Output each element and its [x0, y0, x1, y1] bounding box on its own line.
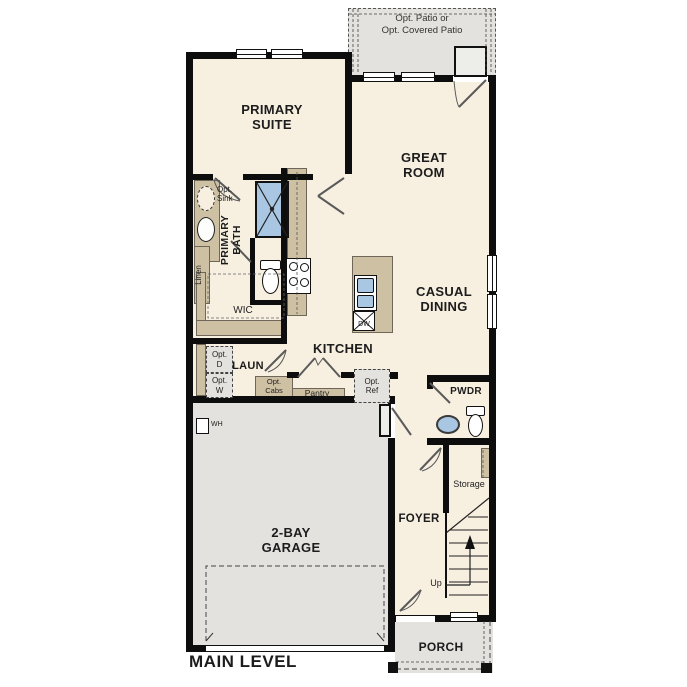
- linen-label: Linen: [194, 246, 210, 304]
- bath-toilet-bowl: [262, 268, 279, 294]
- island-sink-bowl: [357, 278, 374, 293]
- wic-shelf-bottom: [196, 320, 286, 336]
- room-label-casual-dining: CASUAL DINING: [404, 285, 484, 315]
- garage-area: [193, 403, 390, 645]
- garage-door: [206, 645, 384, 652]
- garage-door-leaf: [379, 404, 391, 437]
- room-label-wic: WIC: [218, 305, 268, 317]
- floor-plan: Opt. Patio or Opt. Covered Patio PRIMARY…: [0, 0, 687, 687]
- window: [401, 72, 435, 82]
- room-label-laundry: LAUN: [218, 360, 278, 373]
- wall: [193, 174, 213, 180]
- vanity-sink-icon: [197, 217, 215, 242]
- opt-washer-box: Opt. W: [206, 373, 233, 398]
- wall: [281, 168, 287, 340]
- room-label-porch: PORCH: [401, 641, 481, 655]
- opt-ref-label: Opt. Ref: [361, 377, 383, 395]
- wall: [345, 52, 352, 174]
- pantry-label: Pantry: [292, 389, 342, 399]
- room-label-powder: PWDR: [436, 386, 496, 398]
- wall: [489, 75, 496, 622]
- room-label-foyer: FOYER: [384, 513, 454, 526]
- wall: [186, 52, 193, 652]
- powder-sink-icon: [436, 415, 460, 434]
- dishwasher-label: DW: [352, 321, 376, 329]
- opt-ref-box: Opt. Ref: [354, 369, 390, 403]
- patio-door-leaf: [454, 46, 487, 77]
- laundry-shelf: [196, 344, 206, 396]
- wall: [427, 375, 433, 389]
- water-heater-label: WH: [211, 421, 231, 429]
- room-label-primary-bath: PRIMARY BATH: [216, 205, 246, 275]
- window: [236, 49, 267, 59]
- wall: [243, 174, 313, 180]
- opt-sink-label: Opt. Sink: [217, 185, 241, 203]
- water-heater-icon: [196, 418, 209, 434]
- stairs-up-label: Up: [427, 578, 445, 588]
- opt-cabs-text: Opt. Cabs: [263, 378, 285, 395]
- patio-label-line1: Opt. Patio or: [348, 14, 496, 25]
- wall: [193, 338, 287, 344]
- room-label-kitchen: KITCHEN: [293, 342, 393, 357]
- opt-cabs-label: Opt. Cabs: [255, 378, 293, 395]
- window: [271, 49, 303, 59]
- room-label-garage: 2-BAY GARAGE: [246, 526, 336, 556]
- wall: [427, 375, 496, 382]
- window: [487, 294, 497, 329]
- burner: [300, 278, 309, 287]
- powder-toilet-bowl: [468, 414, 483, 437]
- burner: [289, 262, 298, 271]
- burner: [300, 263, 309, 272]
- storage-label: Storage: [444, 479, 494, 489]
- room-label-primary-suite: PRIMARY SUITE: [227, 103, 317, 133]
- window: [450, 612, 478, 622]
- wall: [427, 438, 496, 445]
- wall: [250, 238, 255, 305]
- window: [487, 255, 497, 292]
- optional-sink-icon: [197, 186, 215, 211]
- door-opening: [396, 616, 435, 622]
- window: [363, 72, 395, 82]
- wall: [186, 52, 352, 59]
- patio-label-line2: Opt. Covered Patio: [348, 26, 496, 37]
- burner: [289, 277, 298, 286]
- room-label-great-room: GREAT ROOM: [389, 151, 459, 181]
- page-title: MAIN LEVEL: [189, 652, 297, 672]
- opt-washer-label: Opt. W: [211, 376, 229, 394]
- island-sink-bowl: [357, 295, 374, 308]
